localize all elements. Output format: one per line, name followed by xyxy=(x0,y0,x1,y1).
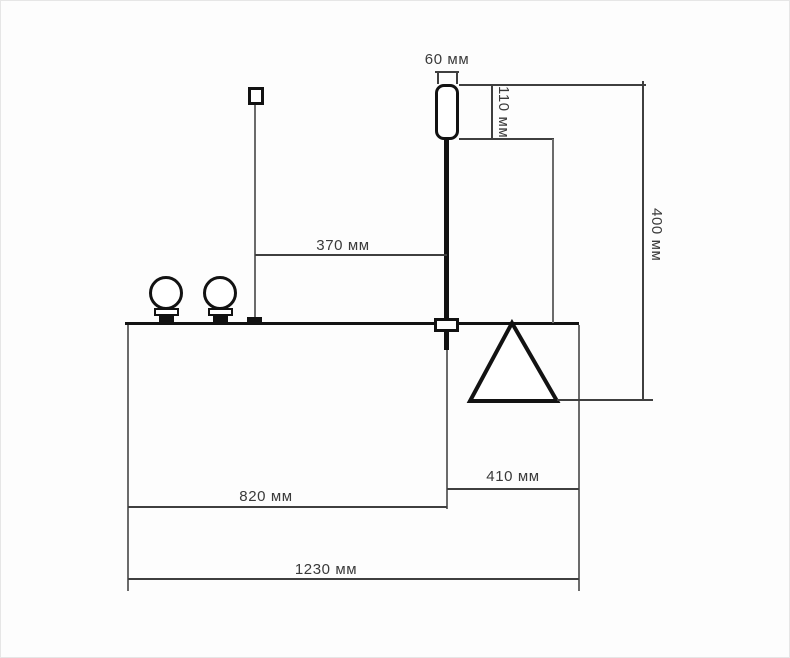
pole-bracket xyxy=(434,318,459,332)
dim-line-110mm xyxy=(491,84,493,139)
dome-light-right xyxy=(203,276,237,310)
dim-label-820mm: 820 мм xyxy=(211,488,321,505)
beacon-lamp xyxy=(435,84,459,140)
dim-line-410mm xyxy=(447,488,579,490)
left-post xyxy=(254,105,256,323)
extension-line-beacon-bottom xyxy=(459,138,554,140)
dim-line-820mm xyxy=(128,506,447,508)
dim-tick xyxy=(456,71,458,84)
dome-light-left-foot xyxy=(159,315,174,323)
dim-label-410mm: 410 мм xyxy=(458,468,568,485)
dim-label-110mm: 110 мм xyxy=(495,86,512,138)
warning-triangle xyxy=(465,319,562,406)
mast-pole-lower-stub xyxy=(444,332,449,350)
extension-line-top xyxy=(459,84,646,86)
extension-line-triangle-base xyxy=(557,399,653,401)
extension-line-down-to-body xyxy=(552,139,554,323)
dome-light-left xyxy=(149,276,183,310)
pole-extension-line xyxy=(446,350,448,509)
dim-line-1230mm xyxy=(128,578,579,580)
dim-line-370mm xyxy=(255,254,447,256)
body-right-edge xyxy=(578,325,580,591)
dim-label-1230mm: 1230 мм xyxy=(271,561,381,578)
technical-drawing: 60 мм 110 мм 400 мм 370 мм 410 мм 820 мм… xyxy=(0,0,790,658)
dim-line-400mm xyxy=(642,81,644,401)
dim-label-400mm: 400 мм xyxy=(648,208,665,261)
left-post-tip xyxy=(248,87,264,105)
dim-label-60mm: 60 мм xyxy=(392,51,502,68)
dome-light-right-foot xyxy=(213,315,228,323)
dim-tick xyxy=(437,71,439,84)
dim-label-370mm: 370 мм xyxy=(288,237,398,254)
body-left-edge xyxy=(127,325,129,591)
left-post-foot xyxy=(247,317,262,323)
mast-pole xyxy=(444,138,449,319)
